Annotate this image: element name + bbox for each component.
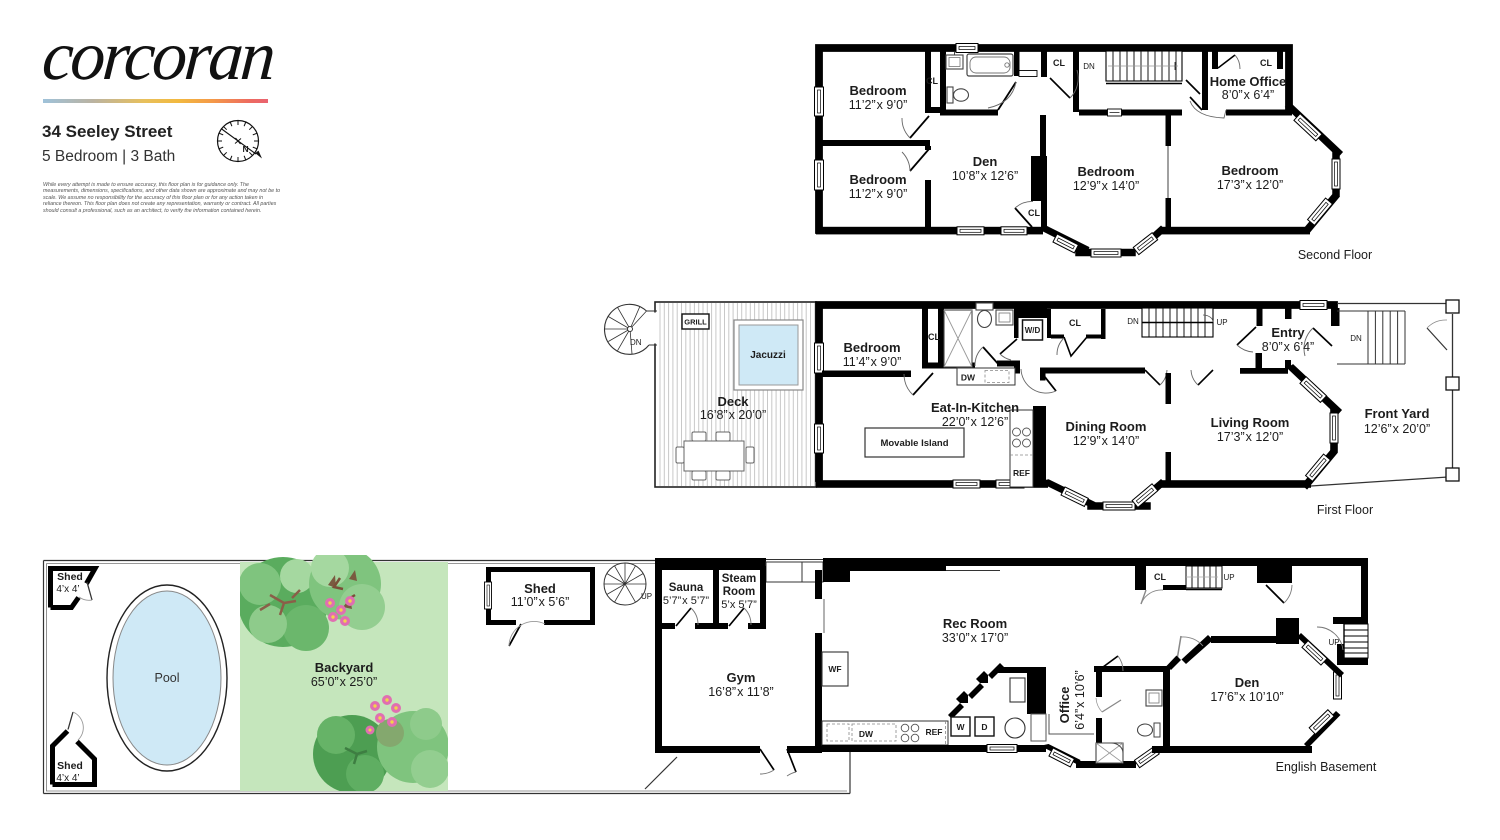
svg-text:33’0” x 17’0”: 33’0” x 17’0” [942,631,1008,645]
svg-text:W: W [956,722,965,732]
svg-text:Shed: Shed [57,571,83,583]
svg-text:11’4” x 9’0”: 11’4” x 9’0” [843,355,901,369]
svg-text:CL: CL [1260,58,1272,68]
svg-text:16’8” x 11’8”: 16’8” x 11’8” [708,685,773,699]
svg-text:Shed: Shed [524,581,556,596]
svg-text:Living Room: Living Room [1211,415,1290,430]
svg-text:12’6” x 20’0”: 12’6” x 20’0” [1364,422,1430,436]
svg-text:Bedroom: Bedroom [1077,164,1134,179]
svg-text:16’8” x 20’0”: 16’8” x 20’0” [700,408,766,422]
svg-text:4’x 4’: 4’x 4’ [56,773,79,784]
svg-text:Backyard: Backyard [315,660,374,675]
svg-text:DN: DN [1350,334,1362,343]
svg-text:11’0” x 5’6”: 11’0” x 5’6” [511,595,569,609]
svg-text:Office: Office [1057,687,1072,724]
svg-text:Dining Room: Dining Room [1066,419,1147,434]
svg-text:Pool: Pool [154,671,179,685]
svg-text:DN: DN [1127,317,1139,326]
svg-text:10’8” x 12’6”: 10’8” x 12’6” [952,169,1018,183]
svg-text:English Basement: English Basement [1276,760,1377,774]
svg-text:12’9” x 14’0”: 12’9” x 14’0” [1073,179,1139,193]
svg-text:4’x 4’: 4’x 4’ [56,584,79,595]
svg-text:Front Yard: Front Yard [1365,406,1430,421]
svg-text:Home Office: Home Office [1210,74,1287,89]
svg-text:Movable Island: Movable Island [880,438,948,449]
svg-text:W/D: W/D [1025,326,1041,335]
svg-text:5’x 5’7”: 5’x 5’7” [721,599,757,611]
svg-text:Gym: Gym [727,670,756,685]
svg-text:DN: DN [630,338,642,347]
svg-text:WF: WF [828,664,841,674]
svg-text:22’0” x 12’6”: 22’0” x 12’6” [942,415,1008,429]
svg-text:Second Floor: Second Floor [1298,248,1372,262]
svg-text:Room: Room [723,586,756,598]
svg-text:Shed: Shed [57,760,83,772]
svg-text:CL: CL [926,76,938,86]
svg-text:Sauna: Sauna [669,582,704,594]
svg-text:DN: DN [1083,62,1095,71]
svg-text:5’7” x 5’7”: 5’7” x 5’7” [663,595,709,607]
svg-text:12’9” x 14’0”: 12’9” x 14’0” [1073,434,1139,448]
svg-text:First Floor: First Floor [1317,503,1373,517]
svg-text:GRILL: GRILL [684,318,707,327]
svg-text:CL: CL [1028,208,1040,218]
svg-text:UP: UP [641,592,652,601]
svg-text:Den: Den [1235,675,1260,690]
svg-text:8’0” x 6’4”: 8’0” x 6’4” [1222,88,1274,102]
svg-text:DW: DW [859,729,874,739]
svg-text:Bedroom: Bedroom [849,172,906,187]
svg-text:D: D [981,722,987,732]
svg-text:REF: REF [926,727,943,737]
svg-text:Entry: Entry [1271,325,1305,340]
svg-text:Bedroom: Bedroom [1221,163,1278,178]
svg-text:REF: REF [1013,468,1030,478]
svg-text:UP: UP [1216,318,1227,327]
svg-text:CL: CL [928,332,940,342]
svg-text:11’2” x 9’0”: 11’2” x 9’0” [849,187,907,201]
svg-text:Rec Room: Rec Room [943,616,1007,631]
svg-text:CL: CL [1053,58,1065,68]
svg-text:11’2” x 9’0”: 11’2” x 9’0” [849,98,907,112]
svg-text:DW: DW [961,373,976,383]
svg-text:Steam: Steam [722,573,757,585]
svg-text:65’0” x 25’0”: 65’0” x 25’0” [311,675,377,689]
svg-text:Jacuzzi: Jacuzzi [750,350,786,361]
svg-text:Eat-In-Kitchen: Eat-In-Kitchen [931,400,1019,415]
svg-text:17’6” x 10’10”: 17’6” x 10’10” [1210,690,1283,704]
svg-text:CL: CL [1069,318,1081,328]
svg-text:CL: CL [1154,572,1166,582]
svg-text:6’4” x 10’6”: 6’4” x 10’6” [1073,670,1087,729]
svg-text:Bedroom: Bedroom [843,340,900,355]
svg-text:Den: Den [973,154,998,169]
svg-text:UP: UP [1223,573,1234,582]
svg-text:UP: UP [1328,638,1339,647]
svg-text:8’0” x 6’4”: 8’0” x 6’4” [1262,340,1314,354]
svg-text:Bedroom: Bedroom [849,83,906,98]
svg-text:17’3” x 12’0”: 17’3” x 12’0” [1217,178,1283,192]
svg-text:Deck: Deck [717,394,749,409]
svg-text:17’3” x 12’0”: 17’3” x 12’0” [1217,430,1283,444]
